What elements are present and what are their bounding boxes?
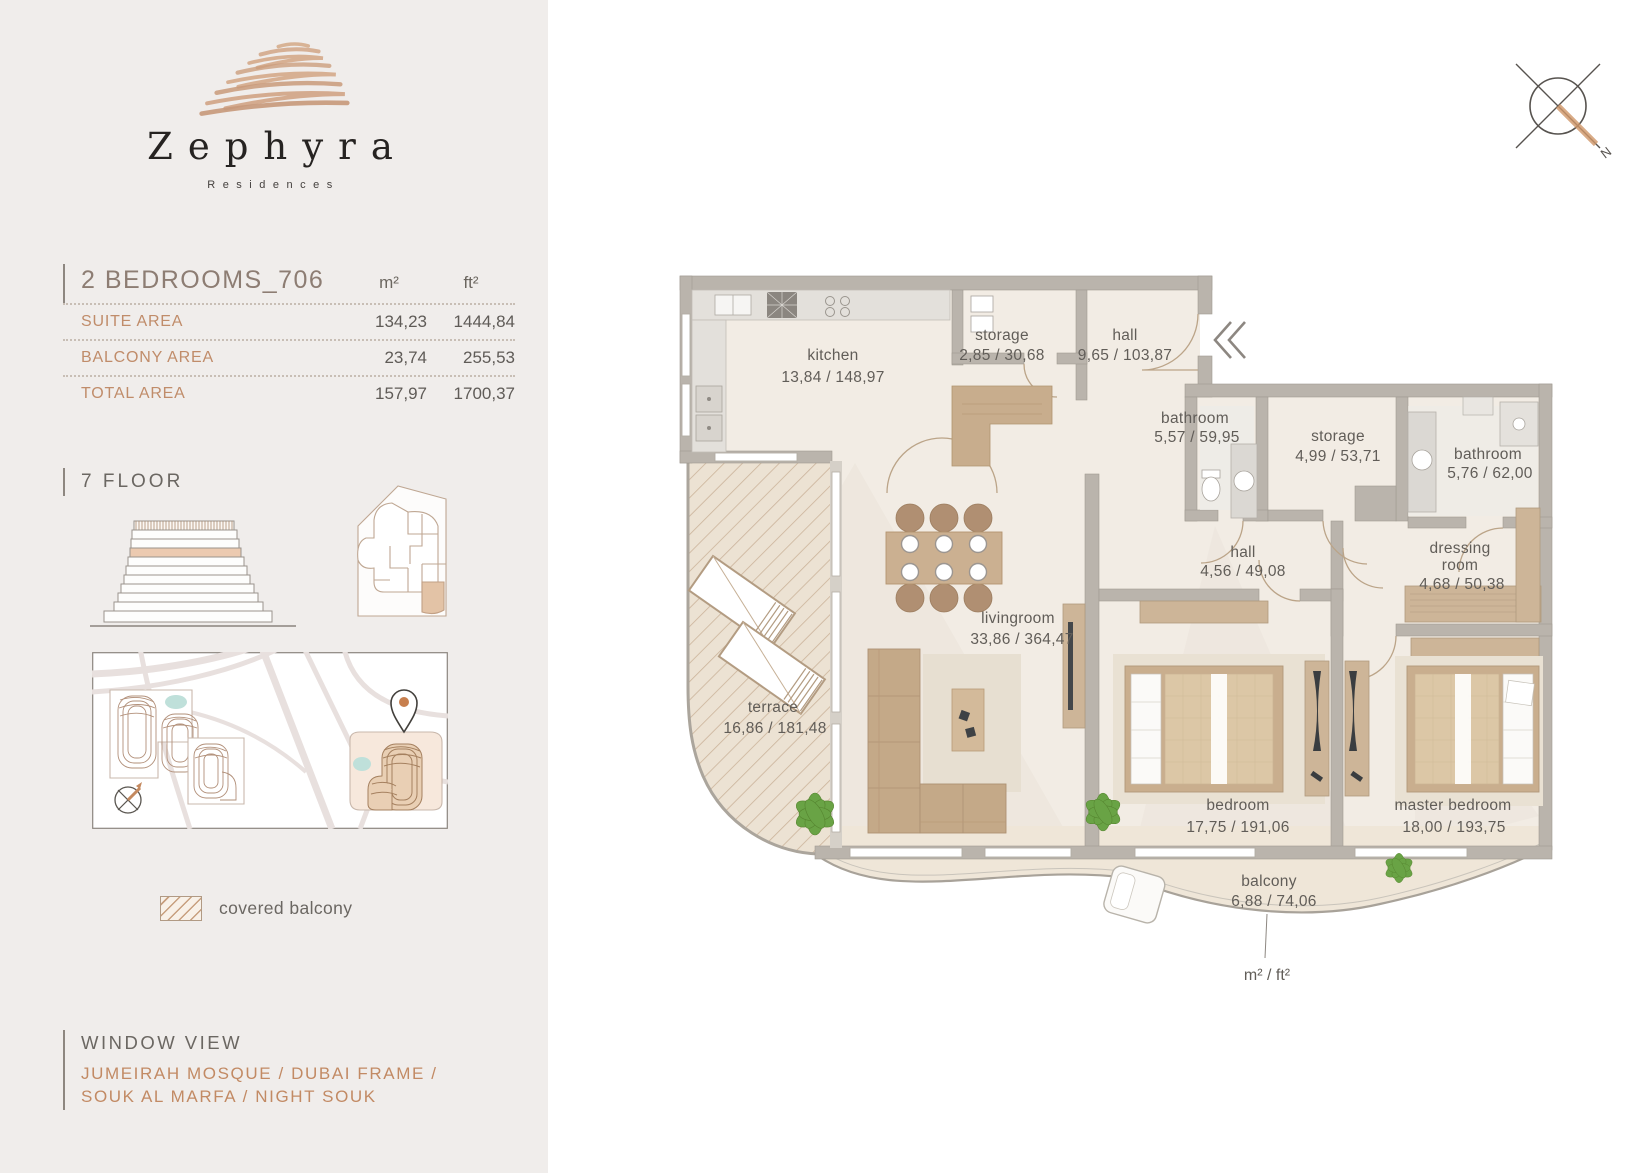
col-head-m2: m² [351,273,427,295]
balcony-label: balcony [1241,873,1297,890]
suite-area-label: SUITE AREA [81,313,351,331]
unit-note-line [1265,914,1267,958]
storage2-area: 4,99 / 53,71 [1295,448,1380,465]
balcony-area-m2: 23,74 [351,348,427,368]
logo-scribble-icon [180,40,360,120]
window-view-line2: SOUK AL MARFA / NIGHT SOUK [81,1085,541,1108]
logo-subtitle: Residences [60,179,480,191]
window-view-block: WINDOW VIEW JUMEIRAH MOSQUE / DUBAI FRAM… [63,1030,541,1110]
map-building-cluster-highlighted [350,732,442,810]
terrace-label: terrace [748,699,798,716]
storage2-label: storage [1311,428,1365,445]
location-map [92,652,448,829]
area-table-header: 2 BEDROOMS_706 m² ft² [63,264,515,303]
storage-top-label: storage [975,327,1029,344]
bathroom1-label: bathroom [1161,410,1229,427]
hall2-area: 4,56 / 49,08 [1200,563,1285,580]
elevation-roof-hatch [134,521,234,530]
building-elevation-icon [88,518,298,634]
livingroom-area: 33,86 / 364,47 [970,631,1073,648]
master-bedroom-area: 18,00 / 193,75 [1402,819,1505,836]
bedroom-label: bedroom [1206,797,1269,814]
map-pond-left [165,695,187,709]
bathroom2-label: bathroom [1454,446,1522,463]
bathroom1-area: 5,57 / 59,95 [1154,429,1239,446]
zephyra-logo: Zephyra Residences [60,40,480,191]
covered-balcony-label: covered balcony [219,898,352,919]
total-area-row: TOTAL AREA 157,97 1700,37 [63,375,515,411]
bedroom-area: 17,75 / 191,06 [1186,819,1289,836]
map-pond-right [353,757,371,771]
north-compass-icon: N [1492,56,1626,174]
compass-north-label: N [1598,144,1615,162]
hall-top-area: 9,65 / 103,87 [1078,347,1172,364]
balcony-area-row: BALCONY AREA 23,74 255,53 [63,339,515,375]
balcony-area-label: 6,88 / 74,06 [1231,893,1316,910]
terrace-area: 16,86 / 181,48 [723,720,826,737]
kitchen-area: 13,84 / 148,97 [781,369,884,386]
balcony-area-ft2: 255,53 [427,348,515,368]
unit-title: 2 BEDROOMS_706 [81,266,351,295]
livingroom-label: livingroom [981,610,1055,627]
sidebar-panel: Zephyra Residences 2 BEDROOMS_706 m² ft²… [0,0,548,1173]
unit-note: m² / ft² [1244,967,1291,984]
kitchen-label: kitchen [807,347,858,364]
highlighted-floor-7 [130,548,241,557]
window-view-title: WINDOW VIEW [81,1032,541,1054]
total-area-ft2: 1700,37 [427,384,515,404]
suite-area-m2: 134,23 [351,312,427,332]
col-head-ft2: ft² [427,273,515,295]
logo-name: Zephyra [60,125,480,168]
dining-set [886,504,1002,612]
master-bedroom-label: master bedroom [1394,797,1511,814]
suite-area-ft2: 1444,84 [427,312,515,332]
map-building-cluster-middle [188,738,244,804]
covered-balcony-hatch-icon [160,896,202,921]
glazed-wall [830,461,842,848]
storage-top-area: 2,85 / 30,68 [959,347,1044,364]
floorplan: kitchen 13,84 / 148,97 storage 2,85 / 30… [655,256,1560,988]
dressing-label-2: room [1442,557,1479,574]
bathroom2-area: 5,76 / 62,00 [1447,465,1533,482]
entrance-chevron-icon [1215,322,1245,358]
area-table: 2 BEDROOMS_706 m² ft² SUITE AREA 134,23 … [63,264,515,411]
balcony-area-label: BALCONY AREA [81,349,351,367]
coffee-table [952,689,984,751]
dressing-label-1: dressing [1430,540,1491,557]
floor-plate-icon [348,478,454,620]
tv-console [1063,604,1085,728]
floor-label: 7 FLOOR [63,468,183,496]
balcony-floor [818,826,1543,912]
total-area-m2: 157,97 [351,384,427,404]
suite-area-row: SUITE AREA 134,23 1444,84 [63,303,515,339]
hall2-label: hall [1230,544,1255,561]
window-view-line1: JUMEIRAH MOSQUE / DUBAI FRAME / [81,1062,541,1085]
hall-top-label: hall [1112,327,1137,344]
master-bedroom-furniture [1395,638,1543,806]
covered-balcony-legend: covered balcony [160,896,352,921]
dressing-area: 4,68 / 50,38 [1419,576,1504,593]
total-area-label: TOTAL AREA [81,385,351,403]
